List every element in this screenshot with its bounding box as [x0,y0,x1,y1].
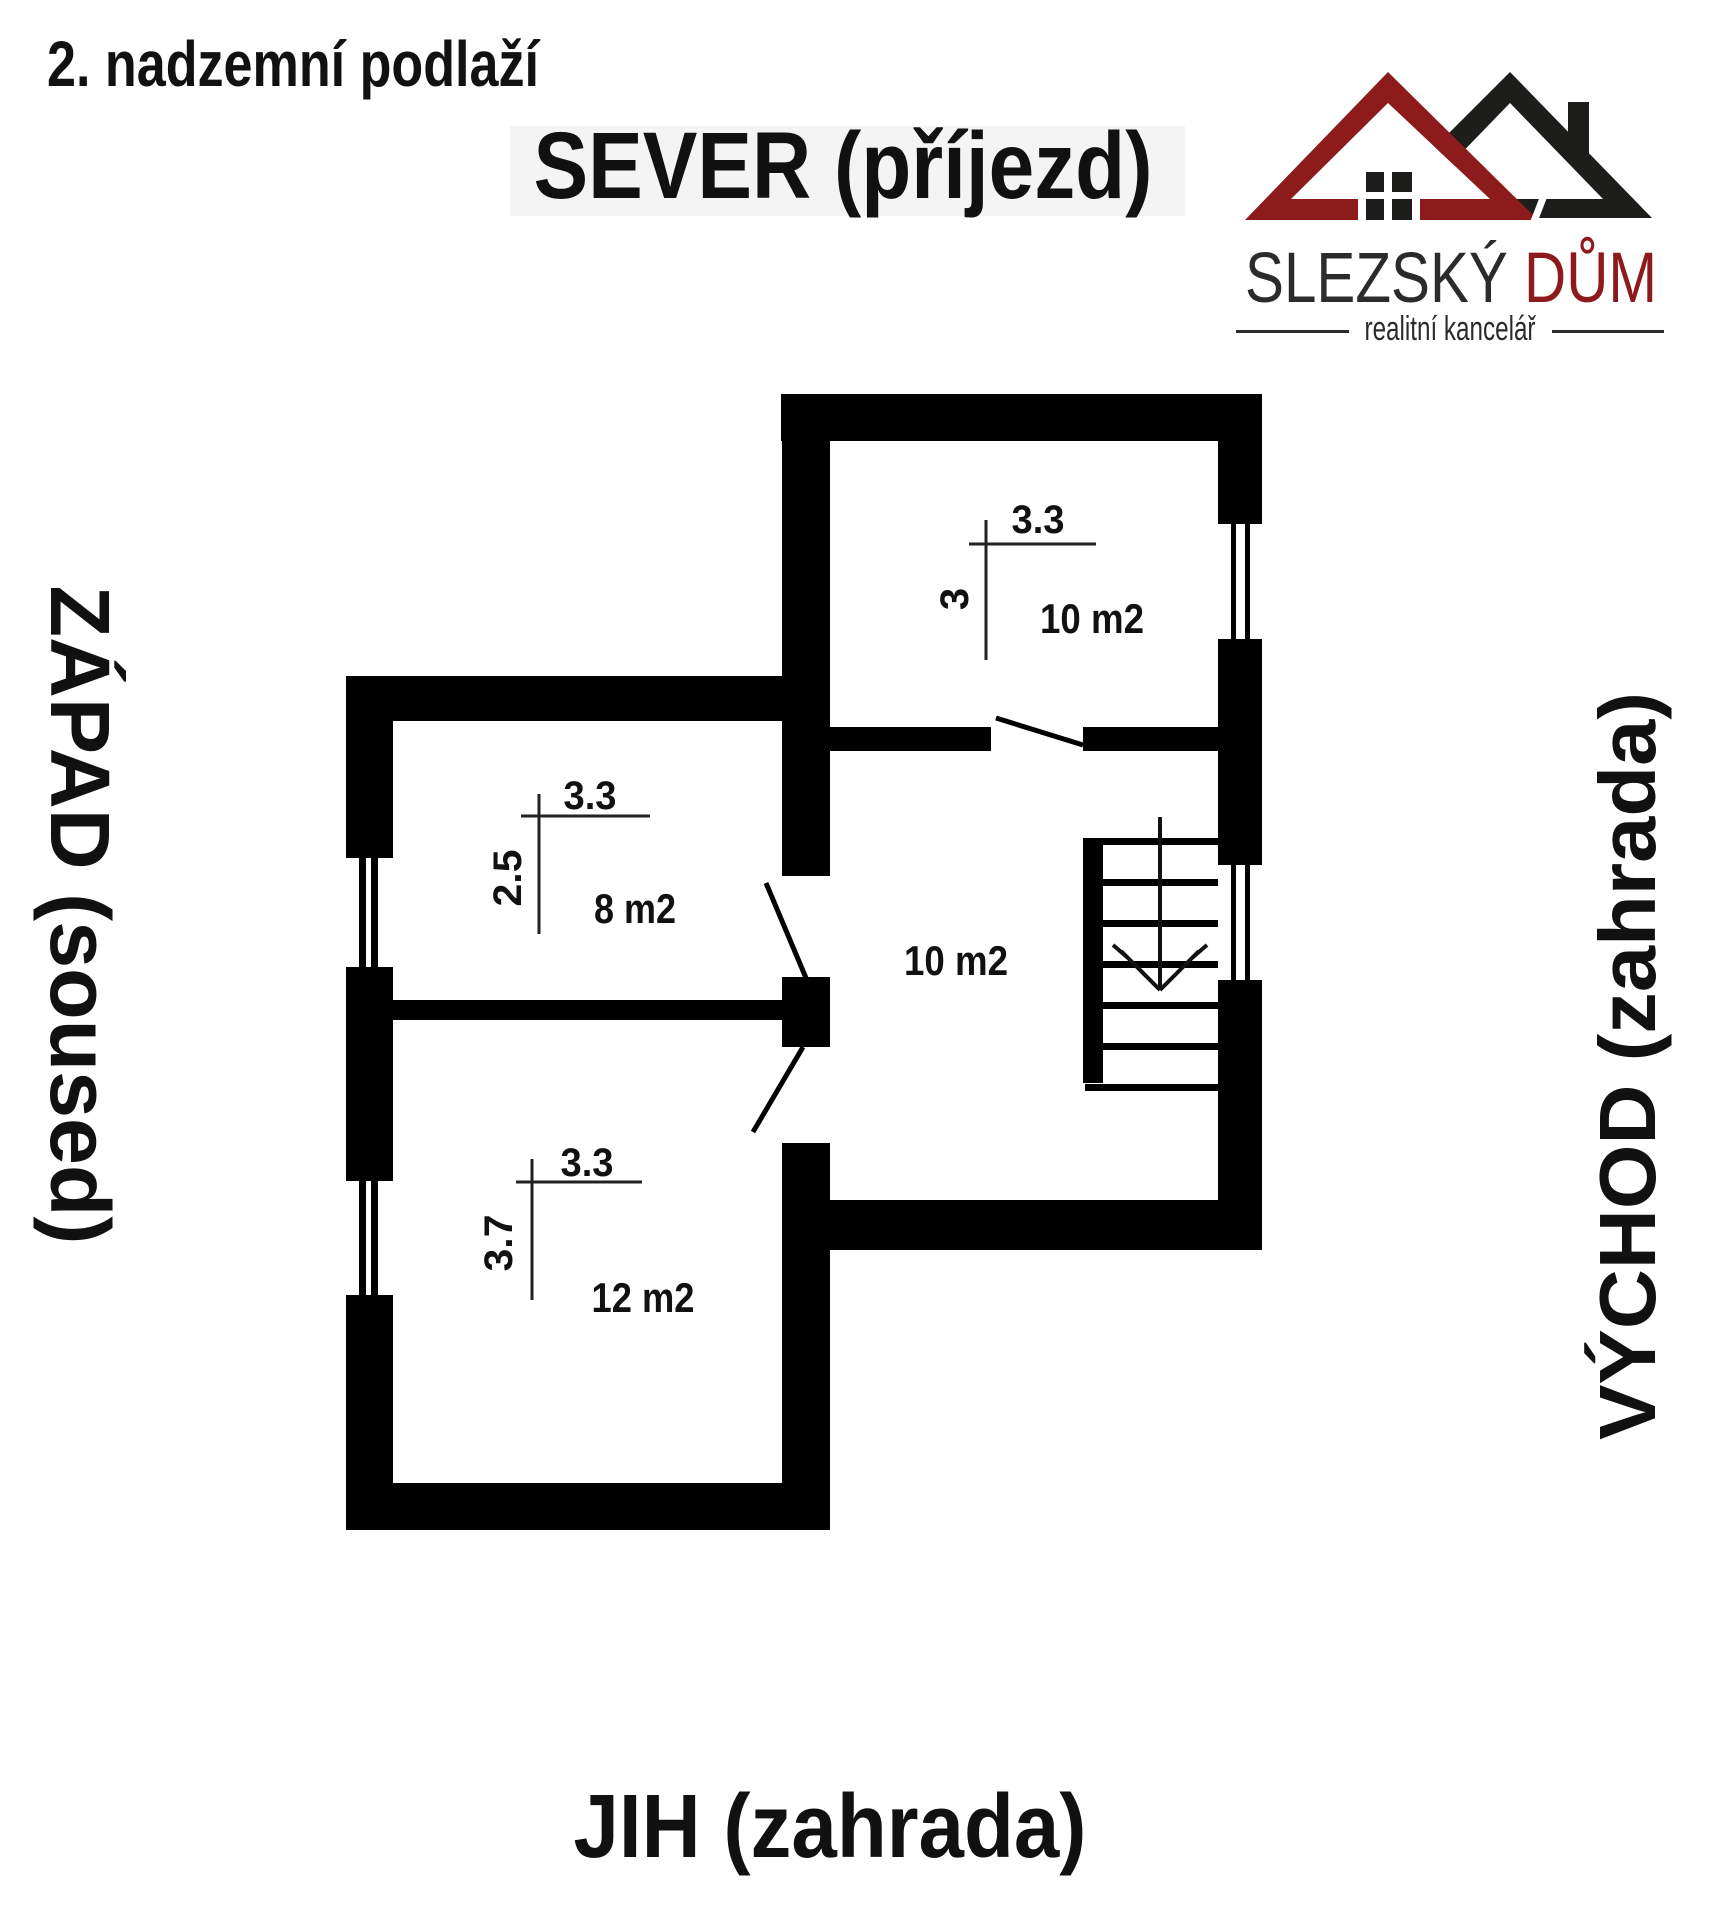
svg-text:3.3: 3.3 [561,1141,614,1185]
svg-text:JIH (zahrada): JIH (zahrada) [574,1777,1087,1877]
svg-text:2.5: 2.5 [486,850,530,907]
svg-text:SEVER (příjezd): SEVER (příjezd) [534,113,1153,219]
svg-text:SLEZSKÝ DŮM: SLEZSKÝ DŮM [1245,238,1657,318]
svg-text:3.7: 3.7 [477,1215,521,1272]
svg-text:realitní kancelář: realitní kancelář [1365,310,1536,348]
svg-text:12 m2: 12 m2 [592,1274,695,1321]
svg-text:10 m2: 10 m2 [1040,595,1144,642]
svg-text:ZÁPAD (soused): ZÁPAD (soused) [33,586,127,1245]
svg-text:2. nadzemní podlaží: 2. nadzemní podlaží [47,28,541,100]
svg-text:10 m2: 10 m2 [904,937,1008,984]
svg-text:3.3: 3.3 [564,774,617,818]
svg-text:3.3: 3.3 [1012,498,1065,542]
svg-text:VÝCHOD (zahrada): VÝCHOD (zahrada) [1583,692,1672,1440]
svg-text:8 m2: 8 m2 [594,885,676,932]
svg-text:3: 3 [933,588,977,610]
